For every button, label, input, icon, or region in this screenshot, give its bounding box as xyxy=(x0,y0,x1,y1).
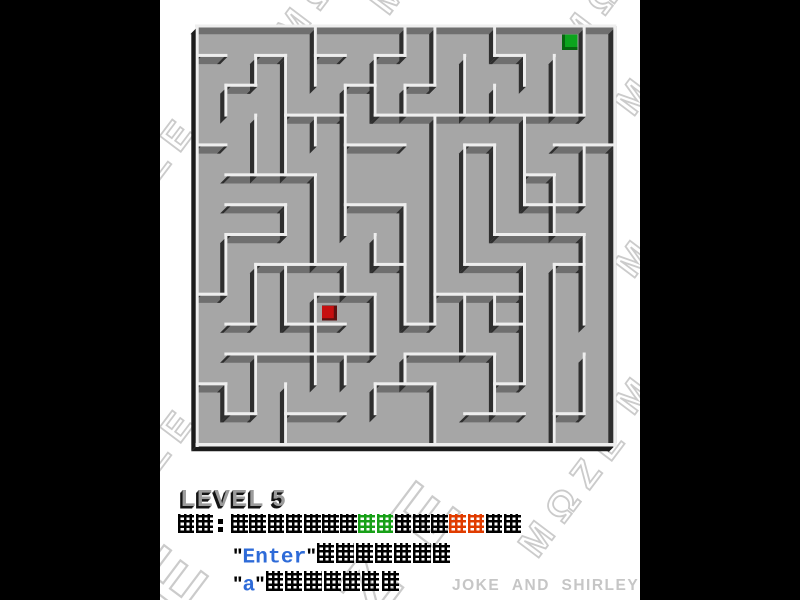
svg-text:MΩZE: MΩZE xyxy=(607,133,736,285)
svg-text:MΩZE: MΩZE xyxy=(607,0,736,123)
svg-text:MΩZE: MΩZE xyxy=(80,104,209,256)
svg-text:MΩZE: MΩZE xyxy=(362,0,491,22)
svg-text:MΩZE: MΩZE xyxy=(607,270,736,422)
svg-text:MΩZE: MΩZE xyxy=(0,497,249,600)
